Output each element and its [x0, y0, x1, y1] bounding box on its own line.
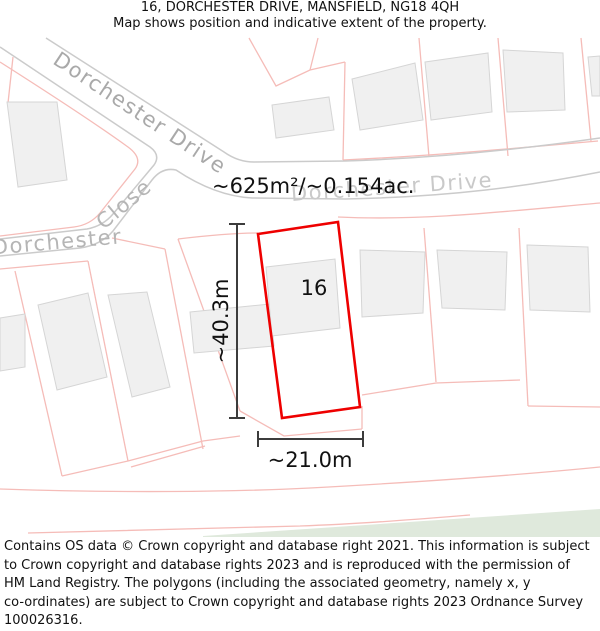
copyright-line: 100026316. — [4, 612, 596, 631]
header: 16, DORCHESTER DRIVE, MANSFIELD, NG18 4Q… — [0, 0, 600, 32]
building — [437, 250, 507, 310]
copyright-line: Contains OS data © Crown copyright and d… — [4, 538, 596, 557]
dimension-label-height: ~40.3m — [209, 279, 233, 364]
buildings — [0, 50, 600, 397]
building — [425, 53, 492, 120]
building — [272, 97, 334, 138]
building — [360, 250, 425, 317]
greenspace-area — [203, 509, 600, 537]
copyright-line: co-ordinates) are subject to Crown copyr… — [4, 594, 596, 613]
building — [0, 314, 25, 371]
building — [352, 63, 423, 130]
page-subtitle: Map shows position and indicative extent… — [0, 16, 600, 32]
copyright-line: HM Land Registry. The polygons (includin… — [4, 575, 596, 594]
building — [7, 102, 67, 187]
dimension-label-width: ~21.0m — [268, 448, 353, 472]
copyright-notice: Contains OS data © Crown copyright and d… — [4, 538, 596, 631]
building — [503, 50, 565, 112]
page-title: 16, DORCHESTER DRIVE, MANSFIELD, NG18 4Q… — [0, 0, 600, 16]
building — [588, 56, 600, 96]
building — [527, 245, 590, 312]
plot-number-label: 16 — [301, 276, 328, 300]
plot-area-label: ~625m²/~0.154ac. — [212, 174, 414, 198]
copyright-line: to Crown copyright and database rights 2… — [4, 557, 596, 576]
building — [108, 292, 170, 397]
property-map: Dorchester Drive Dorchester Drive Dorche… — [0, 0, 600, 625]
